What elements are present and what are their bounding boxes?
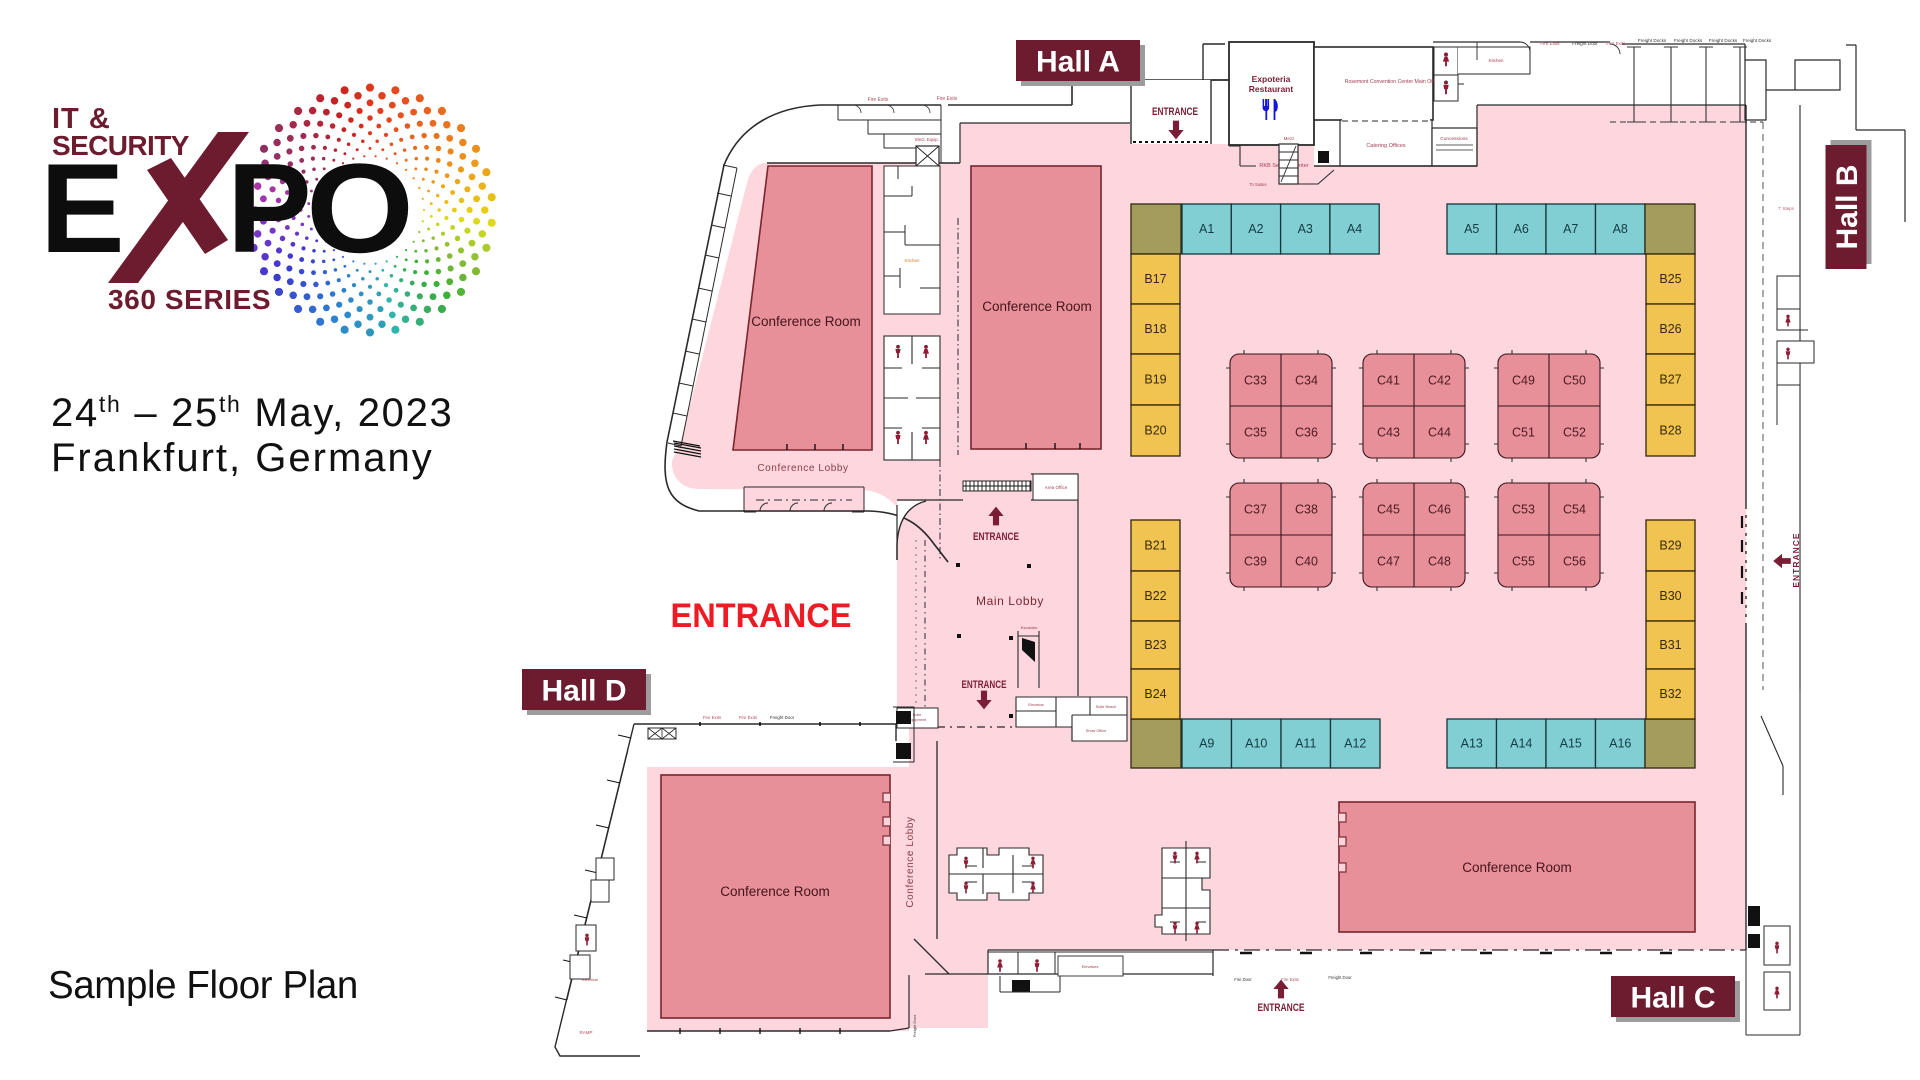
svg-text:C51: C51 (1512, 426, 1535, 440)
svg-text:A1: A1 (1199, 222, 1214, 236)
svg-text:Electrical: Electrical (582, 978, 598, 982)
svg-text:ENTRANCE: ENTRANCE (671, 597, 852, 635)
svg-text:7' Steps: 7' Steps (1778, 206, 1795, 211)
svg-text:Freight Door: Freight Door (912, 1014, 917, 1037)
svg-text:B19: B19 (1144, 373, 1166, 387)
svg-text:Main Lobby: Main Lobby (976, 594, 1044, 608)
svg-text:B25: B25 (1659, 272, 1681, 286)
svg-text:B29: B29 (1659, 539, 1681, 553)
svg-text:Freight Docks: Freight Docks (1674, 38, 1703, 43)
svg-text:C54: C54 (1563, 503, 1586, 517)
svg-text:Fire Exits: Fire Exits (703, 715, 722, 720)
svg-text:A12: A12 (1344, 737, 1366, 751)
svg-text:C34: C34 (1295, 374, 1318, 388)
svg-text:Mezz: Mezz (1284, 136, 1296, 141)
svg-text:Fire Exits: Fire Exits (1606, 41, 1626, 46)
svg-text:B32: B32 (1659, 687, 1681, 701)
svg-text:B28: B28 (1659, 424, 1681, 438)
svg-text:Fire Exits: Fire Exits (937, 96, 958, 102)
svg-text:Fire Exits: Fire Exits (1540, 41, 1560, 46)
svg-text:Elect. Equip.: Elect. Equip. (915, 137, 939, 142)
svg-text:C43: C43 (1377, 426, 1400, 440)
svg-text:Hall A: Hall A (1036, 46, 1120, 79)
svg-text:Fire Exits: Fire Exits (868, 97, 889, 103)
svg-text:C46: C46 (1428, 503, 1451, 517)
svg-text:A11: A11 (1295, 737, 1316, 751)
svg-text:RAMP: RAMP (579, 1030, 592, 1035)
svg-text:B23: B23 (1144, 638, 1166, 652)
svg-text:B30: B30 (1659, 589, 1681, 603)
svg-text:P: P (227, 137, 312, 279)
svg-text:C38: C38 (1295, 503, 1318, 517)
svg-text:Elevators: Elevators (1082, 964, 1099, 969)
svg-text:C48: C48 (1428, 555, 1451, 569)
svg-text:C41: C41 (1377, 374, 1400, 388)
svg-text:Concessions: Concessions (1440, 136, 1468, 142)
svg-text:Frankfurt, Germany: Frankfurt, Germany (51, 436, 434, 480)
svg-text:Freight Door: Freight Door (1328, 975, 1352, 980)
svg-text:Expoteria: Expoteria (1252, 74, 1291, 84)
svg-text:A3: A3 (1298, 222, 1313, 236)
svg-text:B17: B17 (1144, 272, 1166, 286)
svg-text:B18: B18 (1144, 322, 1166, 336)
svg-text:C39: C39 (1244, 555, 1267, 569)
svg-text:Freight Docks: Freight Docks (1743, 38, 1772, 43)
svg-text:Conference Room: Conference Room (720, 884, 830, 899)
svg-text:Freight Door: Freight Door (770, 715, 795, 720)
svg-text:C33: C33 (1244, 374, 1267, 388)
svg-text:C45: C45 (1377, 503, 1400, 517)
svg-text:Conference Lobby: Conference Lobby (905, 816, 916, 907)
svg-text:Elevators: Elevators (1028, 703, 1044, 707)
svg-text:B24: B24 (1144, 687, 1166, 701)
svg-text:B31: B31 (1659, 638, 1681, 652)
svg-text:O: O (306, 137, 414, 279)
svg-text:Conference Room: Conference Room (751, 314, 861, 329)
svg-text:Hall C: Hall C (1630, 982, 1715, 1015)
svg-text:Hall D: Hall D (541, 675, 626, 708)
svg-text:A2: A2 (1248, 222, 1263, 236)
svg-text:Show Office: Show Office (1086, 729, 1106, 733)
svg-text:C55: C55 (1512, 555, 1535, 569)
svg-text:B27: B27 (1659, 373, 1681, 387)
svg-text:Freight Docks: Freight Docks (1638, 38, 1667, 43)
svg-text:Hall B: Hall B (1831, 164, 1864, 249)
svg-text:A14: A14 (1510, 737, 1532, 751)
svg-text:Escalator: Escalator (1021, 625, 1038, 630)
svg-text:B20: B20 (1144, 424, 1166, 438)
svg-text:A9: A9 (1199, 737, 1214, 751)
svg-text:C53: C53 (1512, 503, 1535, 517)
svg-text:To Suites: To Suites (1249, 182, 1266, 187)
svg-text:Restaurant: Restaurant (1249, 84, 1294, 94)
svg-text:Sample Floor Plan: Sample Floor Plan (48, 964, 358, 1007)
svg-text:Area Office: Area Office (1045, 485, 1068, 490)
svg-text:Conference Lobby: Conference Lobby (757, 463, 848, 474)
svg-text:A16: A16 (1609, 737, 1631, 751)
svg-text:ENTRANCE: ENTRANCE (1791, 532, 1801, 587)
svg-text:C49: C49 (1512, 374, 1535, 388)
svg-text:C50: C50 (1563, 374, 1586, 388)
svg-text:C42: C42 (1428, 374, 1451, 388)
svg-text:Fire Door: Fire Door (1234, 977, 1252, 982)
svg-text:Catering Offices: Catering Offices (1366, 143, 1406, 149)
svg-text:Suite Beach: Suite Beach (1096, 705, 1116, 709)
svg-text:A8: A8 (1613, 222, 1628, 236)
svg-text:ENTRANCE: ENTRANCE (1258, 1002, 1305, 1014)
svg-text:360 SERIES: 360 SERIES (108, 284, 271, 315)
svg-text:A5: A5 (1464, 222, 1479, 236)
svg-text:A13: A13 (1461, 737, 1483, 751)
svg-text:C37: C37 (1244, 503, 1267, 517)
svg-text:B21: B21 (1144, 539, 1166, 553)
svg-text:Conference Room: Conference Room (982, 299, 1092, 314)
svg-text:Freight Door: Freight Door (1572, 41, 1598, 46)
svg-text:ENTRANCE: ENTRANCE (973, 531, 1019, 543)
svg-text:Freight Docks: Freight Docks (1709, 38, 1738, 43)
svg-text:Kitchen: Kitchen (1488, 58, 1504, 63)
svg-text:C56: C56 (1563, 555, 1586, 569)
svg-text:C44: C44 (1428, 426, 1451, 440)
svg-text:Fire Exits: Fire Exits (1281, 977, 1298, 982)
svg-text:ENTRANCE: ENTRANCE (962, 679, 1007, 691)
svg-text:A15: A15 (1560, 737, 1582, 751)
svg-text:A4: A4 (1347, 222, 1362, 236)
svg-text:Conference Room: Conference Room (1462, 860, 1572, 875)
svg-text:Fire Exits: Fire Exits (739, 715, 758, 720)
svg-text:C36: C36 (1295, 426, 1318, 440)
svg-text:B26: B26 (1659, 322, 1681, 336)
svg-text:E: E (40, 137, 125, 279)
svg-text:C35: C35 (1244, 426, 1267, 440)
svg-text:C52: C52 (1563, 426, 1586, 440)
svg-text:Rosemont Convention Center Mai: Rosemont Convention Center Main Offices (1345, 79, 1444, 85)
svg-text:A10: A10 (1245, 737, 1267, 751)
svg-text:Kitchen: Kitchen (904, 258, 920, 263)
svg-text:A7: A7 (1563, 222, 1578, 236)
svg-text:C40: C40 (1295, 555, 1318, 569)
svg-text:C47: C47 (1377, 555, 1400, 569)
svg-text:ENTRANCE: ENTRANCE (1152, 106, 1198, 118)
svg-text:A6: A6 (1514, 222, 1529, 236)
svg-text:B22: B22 (1144, 589, 1166, 603)
